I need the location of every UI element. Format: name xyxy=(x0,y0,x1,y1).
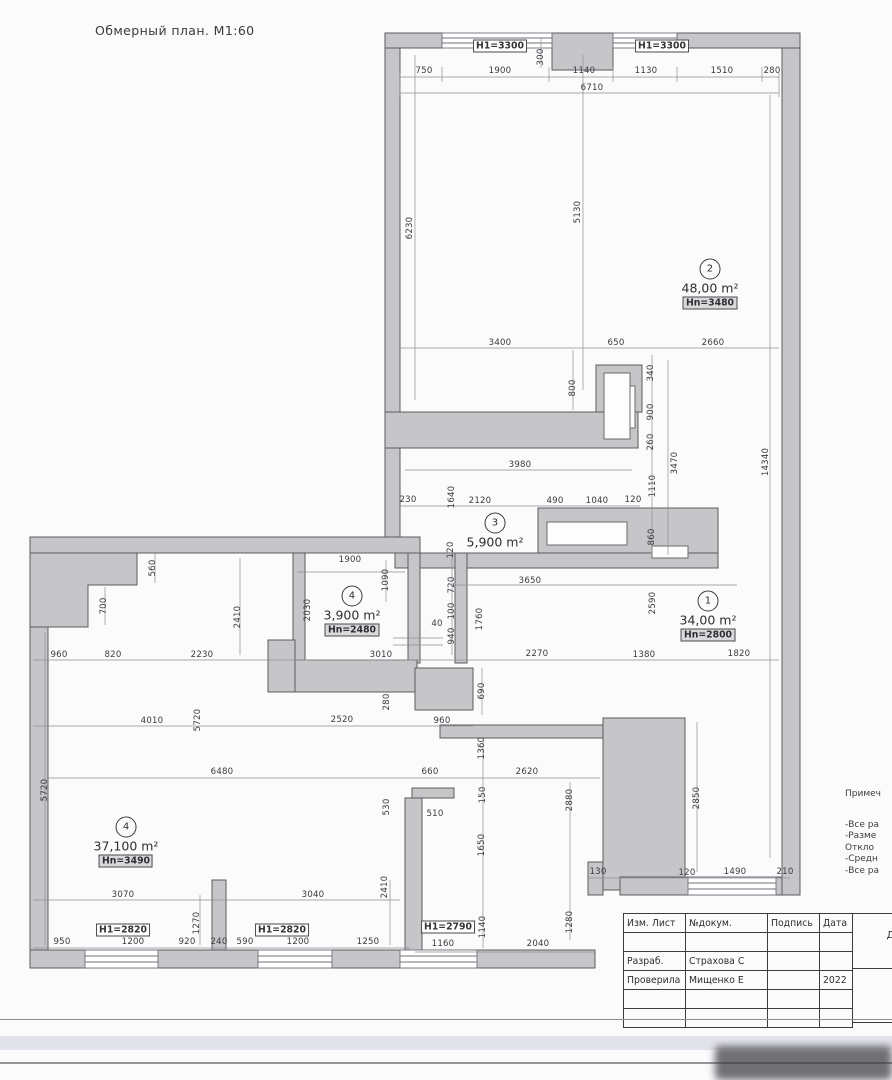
title-block-header-cell: №докум. xyxy=(686,914,768,933)
room-label: 43,900 m²Hn=2480 xyxy=(324,586,381,637)
title-block-cell xyxy=(768,990,820,1009)
title-block-row xyxy=(624,990,853,1009)
room-ceiling-height-label: Hn=3480 xyxy=(683,297,737,310)
title-block-row: Разраб.Страхова С xyxy=(624,952,853,971)
room-number-badge: 1 xyxy=(697,591,718,612)
title-block-header-cell: Изм. Лист xyxy=(624,914,686,933)
title-block-cell xyxy=(768,952,820,971)
room-number-badge: 2 xyxy=(699,259,720,280)
room-label: 35,900 m² xyxy=(467,513,524,550)
room-area-label: 5,900 m² xyxy=(467,535,524,550)
footer-rule-top xyxy=(0,1019,892,1020)
room-label: 437,100 m²Hn=3490 xyxy=(94,817,159,868)
title-block-cell xyxy=(686,990,768,1009)
room-number-badge: 4 xyxy=(116,817,137,838)
title-block-cell xyxy=(624,933,686,952)
title-block-header-cell: Подпись xyxy=(768,914,820,933)
title-block-cell xyxy=(768,971,820,990)
title-block-cell: Страхова С xyxy=(686,952,768,971)
title-block-side-divider xyxy=(853,968,892,969)
footer-watermark xyxy=(715,1046,892,1080)
title-block-cell xyxy=(624,1009,686,1028)
title-block-cell xyxy=(820,933,853,952)
title-block-side-label: ДИЗ xyxy=(853,930,892,941)
title-block-cell: Мищенко Е xyxy=(686,971,768,990)
note-line: -Все ра xyxy=(845,866,892,878)
notes-block: Примеч -Все ра-Разме Откло-Средн-Все ра xyxy=(845,789,892,878)
title-block-row xyxy=(624,1009,853,1028)
title-block-cell: Разраб. xyxy=(624,952,686,971)
room-ceiling-height-label: Hn=2480 xyxy=(325,624,379,637)
title-block-cell xyxy=(820,952,853,971)
note-line: -Разме xyxy=(845,831,892,843)
room-area-label: 3,900 m² xyxy=(324,608,381,623)
room-number-badge: 3 xyxy=(484,513,505,534)
room-number-badge: 4 xyxy=(341,586,362,607)
title-block-table: Изм. Лист№докум.ПодписьДата Разраб.Страх… xyxy=(623,913,853,1028)
title-block-cell: Проверила xyxy=(624,971,686,990)
room-ceiling-height-label: Hn=3490 xyxy=(99,855,153,868)
title-block-cell xyxy=(820,1009,853,1028)
title-block-cell xyxy=(686,933,768,952)
room-area-label: 37,100 m² xyxy=(94,839,159,854)
title-block-row: ПроверилаМищенко Е2022 xyxy=(624,971,853,990)
title-block-cell xyxy=(624,990,686,1009)
room-label: 134,00 m²Hn=2800 xyxy=(680,591,737,642)
title-block-row xyxy=(624,933,853,952)
room-area-label: 48,00 m² xyxy=(682,281,739,296)
room-ceiling-height-label: Hn=2800 xyxy=(681,629,735,642)
note-line: -Все ра xyxy=(845,820,892,832)
floor-plan-page: Обмерный план. М1:60 xyxy=(0,0,892,1080)
note-line: Откло xyxy=(845,843,892,855)
title-block-cell xyxy=(768,1009,820,1028)
title-block-cell: 2022 xyxy=(820,971,853,990)
title-block-header-cell: Дата xyxy=(820,914,853,933)
notes-lines: -Все ра-Разме Откло-Средн-Все ра xyxy=(845,820,892,878)
room-area-label: 34,00 m² xyxy=(680,613,737,628)
room-label: 248,00 m²Hn=3480 xyxy=(682,259,739,310)
notes-heading: Примеч xyxy=(845,789,892,801)
title-block-header-row: Изм. Лист№докум.ПодписьДата xyxy=(624,914,853,933)
title-block-cell xyxy=(820,990,853,1009)
title-block-side-cell: ДИЗ xyxy=(852,913,892,1023)
note-line: -Средн xyxy=(845,854,892,866)
title-block-cell xyxy=(768,933,820,952)
title-block-cell xyxy=(686,1009,768,1028)
